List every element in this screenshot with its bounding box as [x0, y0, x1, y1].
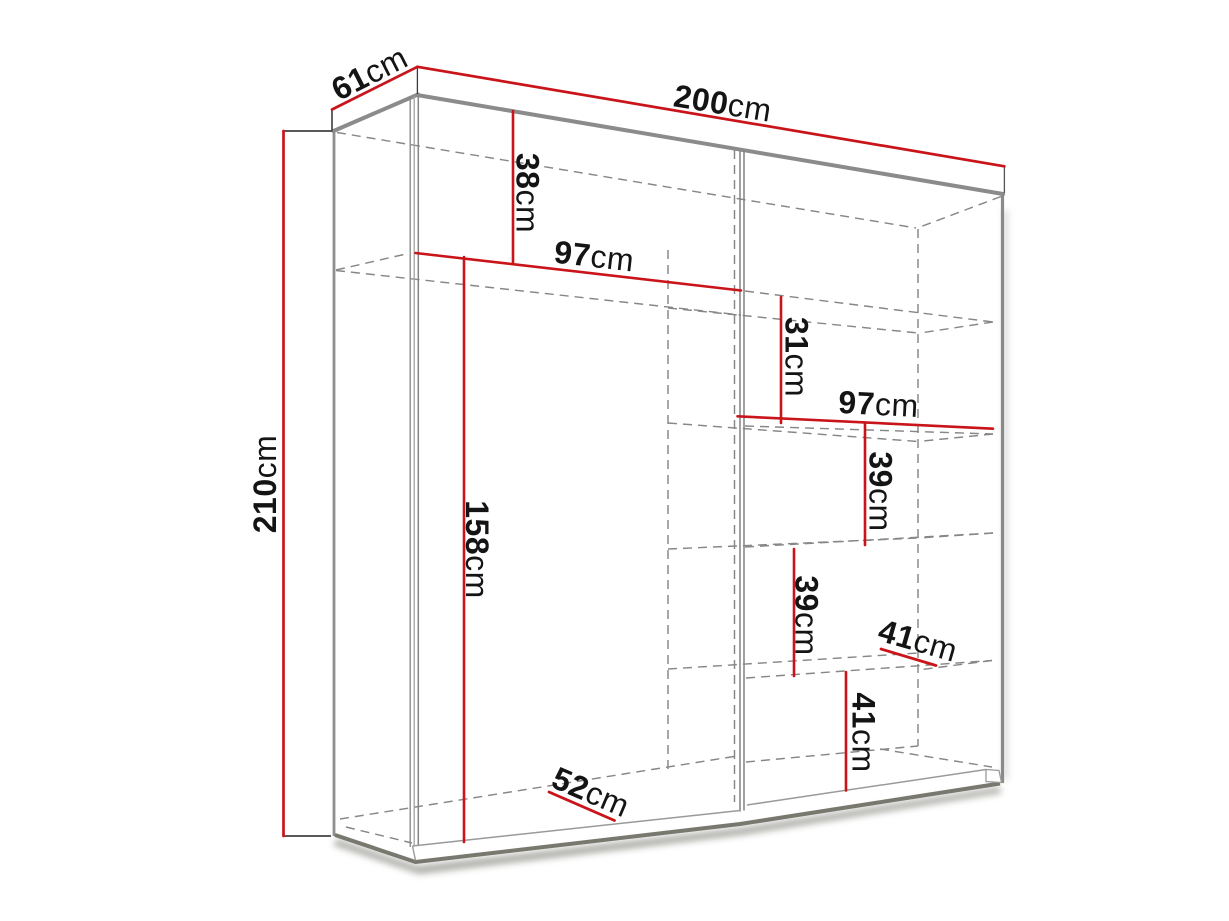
- svg-text:38cm: 38cm: [510, 153, 546, 233]
- svg-text:210cm: 210cm: [247, 435, 283, 534]
- svg-text:158cm: 158cm: [459, 500, 495, 599]
- svg-text:31cm: 31cm: [779, 317, 815, 397]
- svg-text:97cm: 97cm: [838, 384, 920, 424]
- svg-text:41cm: 41cm: [846, 692, 882, 772]
- svg-text:39cm: 39cm: [789, 575, 825, 655]
- svg-text:39cm: 39cm: [863, 451, 899, 531]
